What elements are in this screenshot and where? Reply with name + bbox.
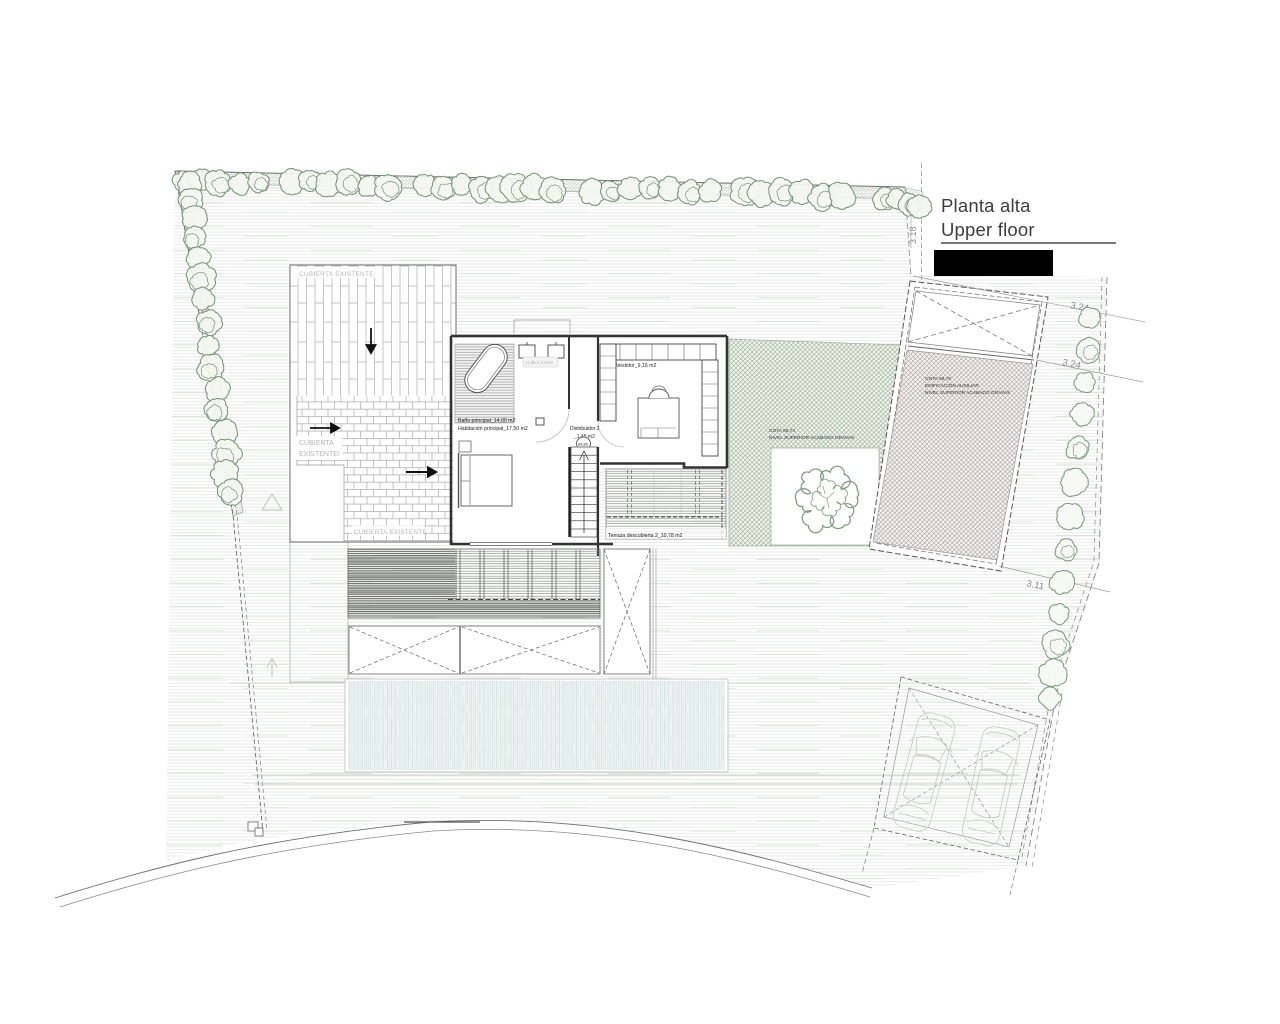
svg-text:Planta alta: Planta alta	[941, 195, 1031, 216]
svg-text:EXISTENTE!: EXISTENTE!	[299, 451, 340, 458]
svg-text:COTA 68,70: COTA 68,70	[925, 376, 951, 382]
svg-text:H.libre 2,53m: H.libre 2,53m	[526, 360, 553, 365]
svg-text:CUBIERTA EXISTENTE: CUBIERTA EXISTENTE	[354, 529, 427, 536]
svg-text:COTA 66,74: COTA 66,74	[769, 428, 795, 434]
svg-text:3.18: 3.18	[908, 226, 918, 244]
svg-text:Baño principal_14,00 m2: Baño principal_14,00 m2	[458, 418, 516, 424]
svg-text:NIVEL SUPERIOR ACABADO GRAVAS: NIVEL SUPERIOR ACABADO GRAVAS	[769, 435, 854, 441]
svg-text:EDIFICACIÓN AUXILIAR: EDIFICACIÓN AUXILIAR	[925, 382, 979, 389]
svg-text:NIVEL SUPERIOR ACABADO GRAVAS: NIVEL SUPERIOR ACABADO GRAVAS	[925, 390, 1010, 396]
svg-text:Terraza descubierta 2_10,78 m2: Terraza descubierta 2_10,78 m2	[608, 533, 683, 539]
svg-text:Vestidor_9,16 m2: Vestidor_9,16 m2	[616, 363, 656, 369]
svg-text:CUBIERTA EXISTENTE: CUBIERTA EXISTENTE	[299, 271, 374, 278]
svg-text:Habitación principal_17,50 m2: Habitación principal_17,50 m2	[458, 426, 528, 432]
svg-text:Distribuidor 2: Distribuidor 2	[570, 426, 600, 432]
svg-text:CUBIERTA: CUBIERTA	[299, 440, 334, 447]
svg-text:68,86: 68,86	[578, 442, 589, 447]
svg-text:Upper floor: Upper floor	[941, 219, 1035, 240]
